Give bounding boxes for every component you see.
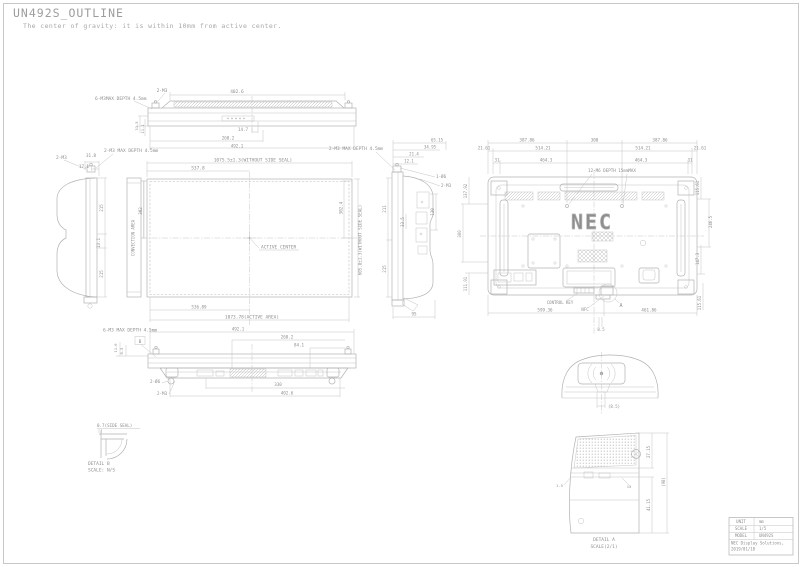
front-view-label: ACTIVE CENTER: [261, 245, 297, 251]
top-view-label: 492.1: [231, 144, 244, 149]
detail-a-label: 15: [627, 484, 632, 489]
detail-a-label: DETAIL A: [593, 537, 615, 543]
side-view-right-label: 34.95: [424, 145, 437, 150]
drawing-sheet: UN492S_OUTLINE The center of gravity: it…: [0, 0, 802, 567]
rear-view-label: 31: [687, 158, 693, 163]
top-view-label: 2-M3: [157, 88, 168, 94]
side-view-right-label: 2-M3: [441, 183, 452, 188]
detail-b-label: DETAIL B: [88, 461, 110, 467]
detail-b-marker: B: [139, 339, 142, 345]
side-view-right-label: 33.5: [400, 217, 405, 227]
detail-a-label: 41.15: [646, 498, 651, 511]
rear-view-label: 137.92: [463, 183, 468, 198]
side-view-right-label: 211: [382, 205, 387, 213]
detail-b-label: 0.7(SIDE SEAL): [97, 423, 132, 428]
bottom-view-label: 2-M3: [157, 391, 168, 396]
rear-view-label: 300: [591, 138, 599, 143]
side-view-left-label: 302: [138, 207, 143, 215]
top-view-label: 31.5: [134, 121, 139, 130]
active-center-point: [249, 237, 251, 239]
front-view-label: 536.89: [191, 305, 207, 310]
side-view-right-label: 95: [411, 312, 417, 317]
rear-view-label: 514.21: [535, 146, 551, 151]
top-view-label: 6-M3MAX DEPTH 4.5mm: [95, 96, 147, 102]
drawing-canvas: 6-M3MAX DEPTH 4.5mm2-M3402.614.7268.2492…: [0, 0, 802, 567]
bottom-view-label: 6-M3 MAX DEPTH 4.5mm: [103, 328, 157, 334]
rear-view-label: 115.61: [697, 295, 702, 310]
rear-view-label: 21.61: [694, 146, 707, 151]
model-value: UN492S: [759, 533, 774, 538]
rear-view-label: 464.3: [635, 158, 648, 163]
detail-b: [97, 429, 140, 460]
detail-b-label: SCALE: N/S: [88, 468, 115, 474]
nec-logo: NEC: [571, 210, 613, 234]
rear-view: [461, 140, 711, 335]
front-view-label: 605.8±1.3(WITHOUT SIDE SEAL): [358, 205, 363, 276]
front-view-label: 1073.78(ACTIVE AREA): [225, 315, 279, 321]
rear-view-label: 21.61: [478, 146, 491, 151]
rear-view-label: 147.3: [695, 252, 700, 265]
side-view-left-label: 13.1: [96, 237, 101, 248]
rear-view-label: 300: [457, 230, 462, 238]
bottom-view-label: 402.6: [281, 391, 294, 396]
bottom-view-label: 268.2: [281, 335, 294, 340]
side-view-right-label: 21.4: [409, 152, 419, 157]
top-view-label: 14.7: [238, 127, 249, 132]
detail-a-label: 27.15: [646, 445, 651, 458]
bottom-view-label: 492.1: [232, 327, 245, 332]
top-view-label: 402.6: [230, 89, 244, 95]
front-view-label: 2-M3 MAX DEPTH 4.5mm: [329, 146, 383, 152]
side-view-left-label: 215: [99, 204, 104, 212]
side-view-right-label: 12.1: [404, 159, 414, 164]
top-view-label: 11.1: [140, 124, 145, 134]
unit-value: mm: [759, 519, 764, 524]
bottom-view-label: 2-Ø6: [150, 379, 161, 384]
drawing-date: 2019/01/18: [731, 547, 756, 552]
rear-view-label: 8.5: [597, 327, 605, 332]
scale-value: 1/5: [759, 526, 767, 531]
detail-a-label: (98): [661, 477, 666, 487]
front-view-label: 1075.5±1.3(WITHOUT SIDE SEAL): [214, 158, 293, 164]
side-view-right-label: 130: [430, 208, 435, 216]
rear-view-label: 246.5: [708, 215, 713, 228]
model-label: MODEL: [735, 533, 748, 538]
scale-label: SCALE: [735, 526, 748, 531]
side-view-right-label: 1-Ø6: [436, 174, 447, 179]
rear-view-label: CONTROL KEY: [547, 300, 574, 305]
side-view-left-label: CONVECTION AREA: [131, 219, 136, 256]
side-view-left-label: 17.1: [79, 164, 90, 169]
bottom-view-label: 8.5: [119, 348, 124, 355]
side-view-left-label: 31.8: [86, 153, 97, 158]
rear-view-label: 387.86: [519, 138, 535, 143]
rear-view-label: 599.36: [537, 308, 553, 313]
drawing-border: [4, 4, 799, 564]
side-view-right-label: 215: [382, 265, 387, 273]
nfc-module-top-label: (8.5): [608, 404, 620, 409]
company-name: NEC Display Solutions,: [731, 541, 784, 546]
rear-view-label: 31: [494, 158, 500, 163]
bottom-view: [116, 329, 356, 397]
rear-view-label: 514.21: [635, 146, 651, 151]
rear-view-label: NFC: [581, 307, 589, 312]
front-view-label: 302.4: [339, 201, 344, 214]
unit-label: UNIT: [736, 519, 746, 524]
detail-a-marker: A: [619, 303, 622, 309]
bottom-view-label: 330: [274, 382, 282, 387]
front-view-label: 537.8: [191, 166, 205, 172]
detail-a: [564, 433, 669, 533]
bottom-view-label: 84.1: [294, 343, 305, 348]
rear-view-label: 461.86: [641, 308, 657, 313]
side-view-right-label: 65.15: [431, 138, 444, 143]
detail-a-label: SCALE(2/1): [590, 544, 617, 550]
rear-view-label: 111.91: [463, 276, 468, 291]
top-view: [134, 92, 356, 150]
rear-view-label: 387.86: [652, 138, 668, 143]
rear-view-label: 12-M6 DEPTH 15mmMAX: [588, 168, 636, 173]
detail-a-label: 1.5: [556, 483, 563, 488]
bottom-view-label: 11.6: [113, 343, 118, 353]
side-view-left-label: 215: [99, 270, 104, 278]
rear-view-label: 115.61: [695, 180, 700, 195]
top-view-label: 268.2: [222, 136, 235, 141]
side-view-left-label: 2-M3: [56, 155, 67, 161]
rear-view-label: 464.3: [540, 158, 553, 163]
side-view-right: [386, 140, 446, 319]
side-view-left-label: 2-M3 MAX DEPTH 4.5mm: [104, 148, 158, 154]
